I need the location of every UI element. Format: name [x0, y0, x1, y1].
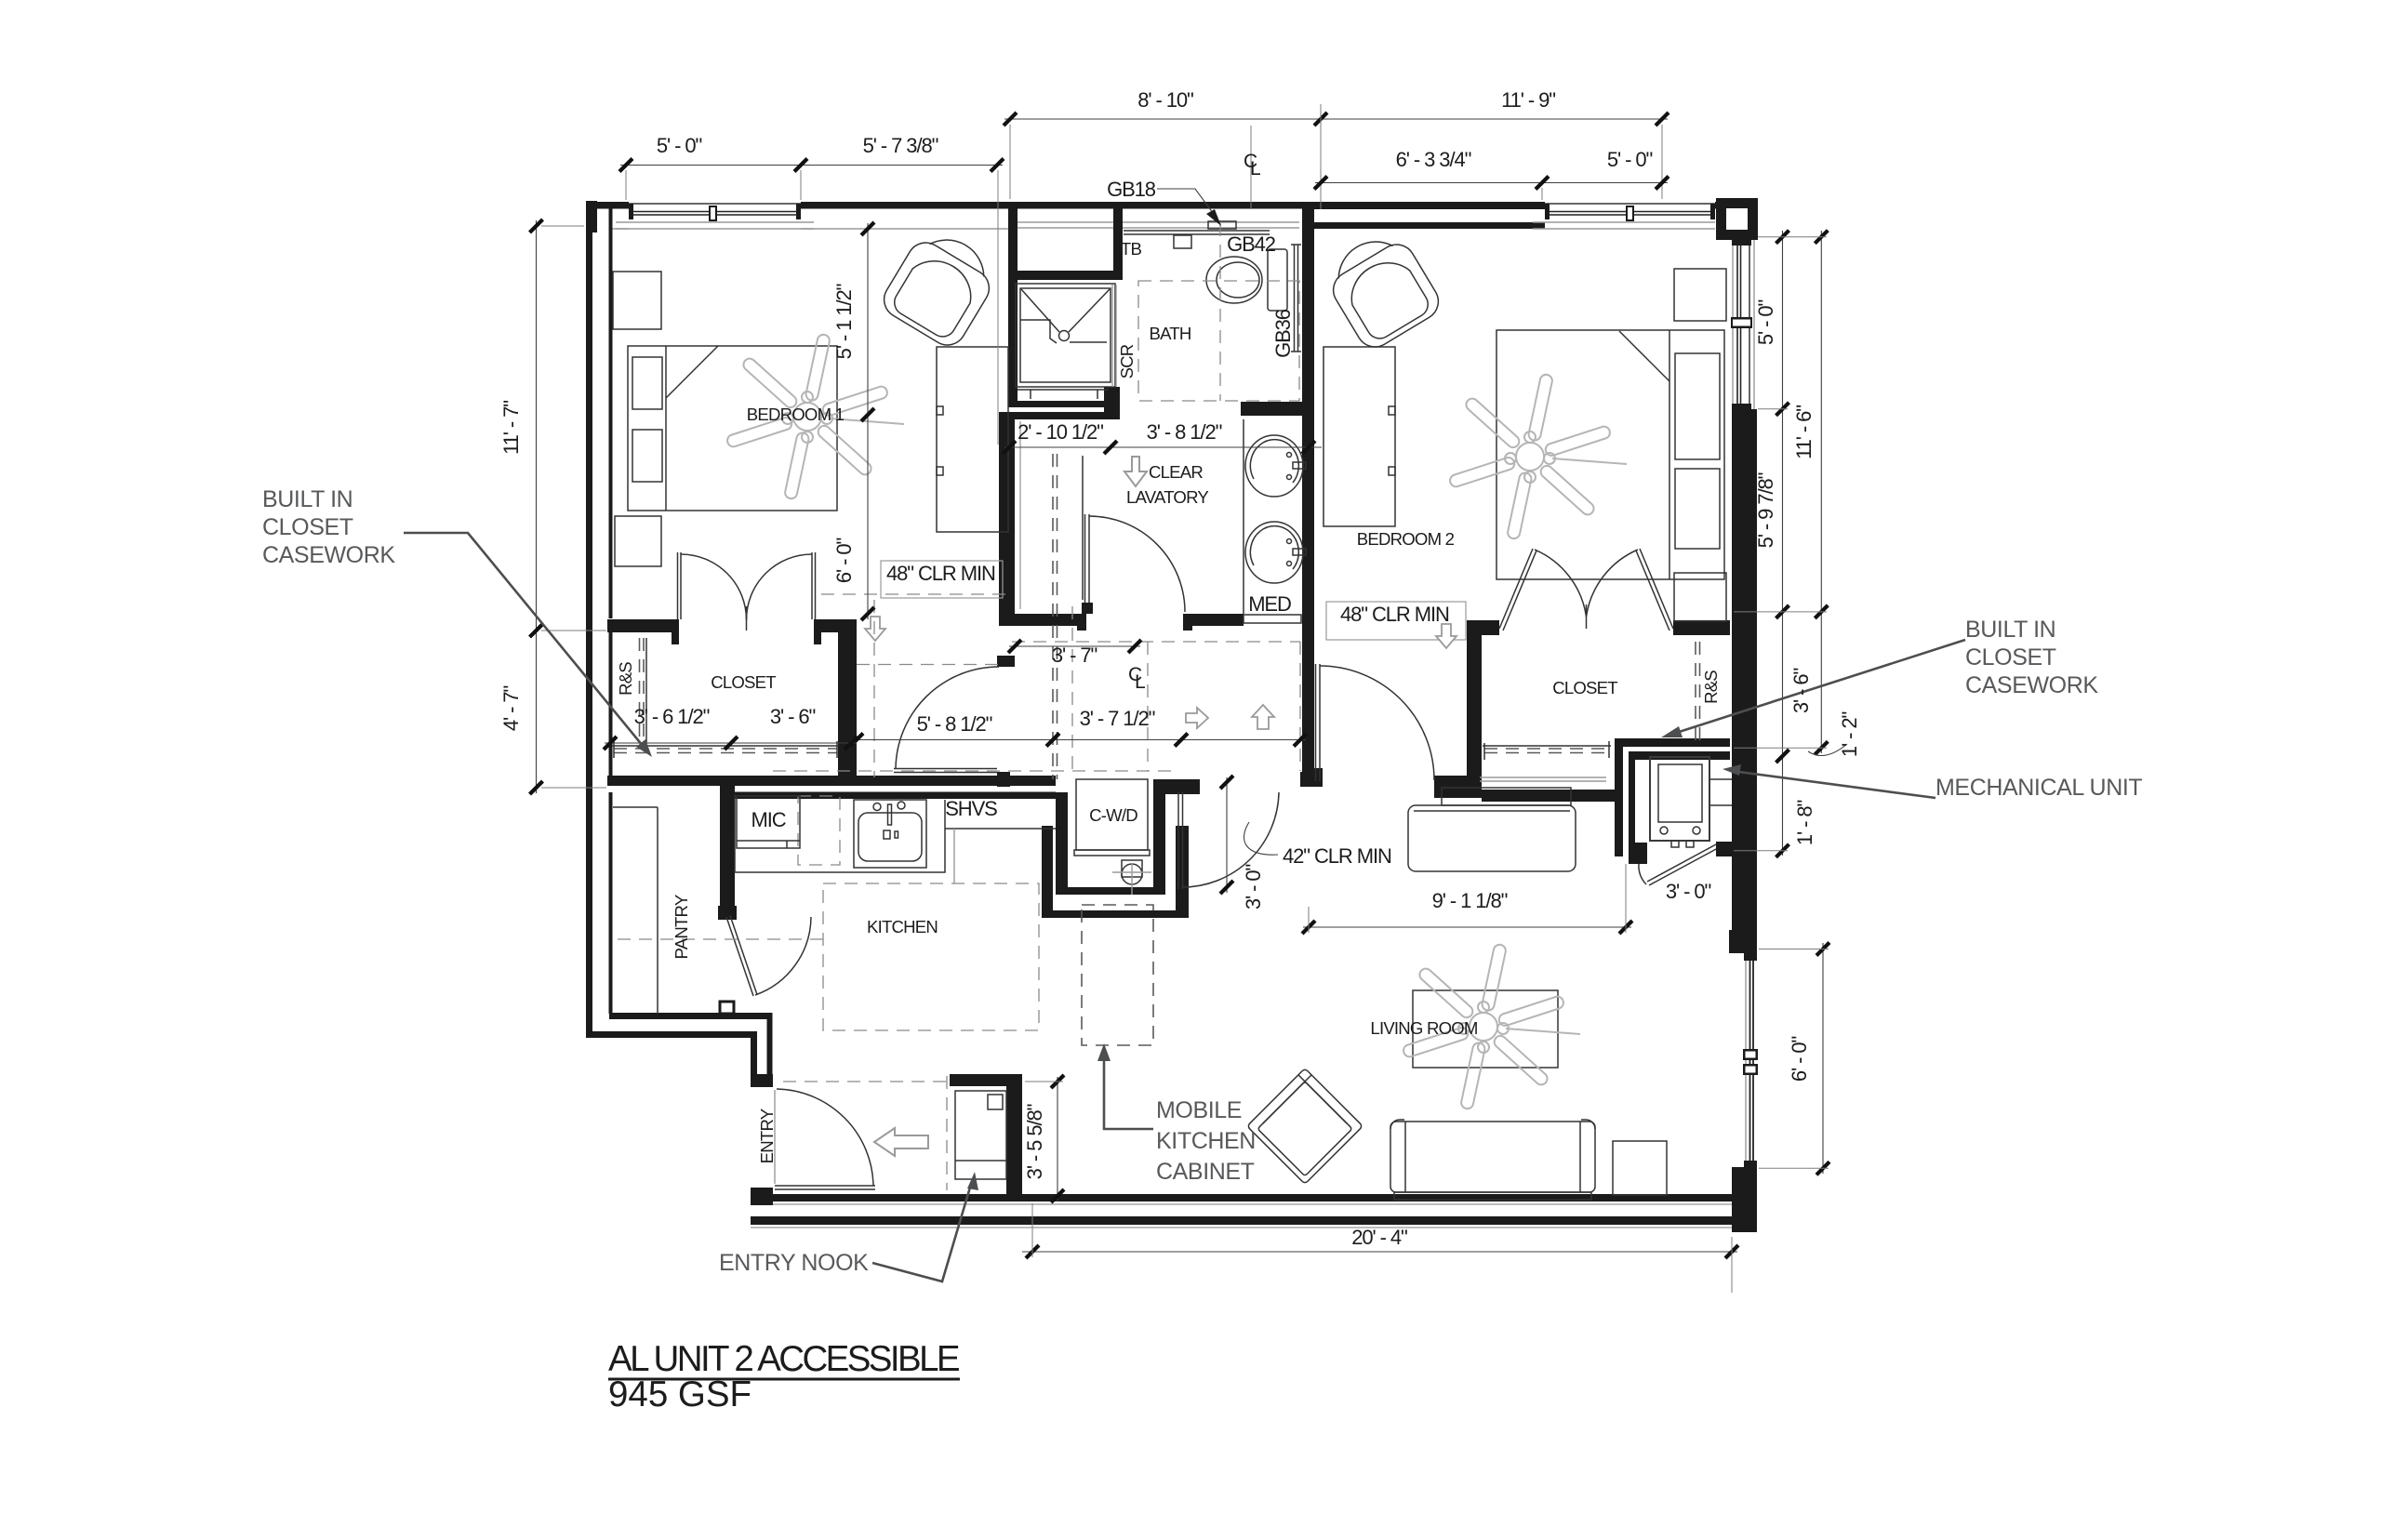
- svg-text:3' - 6": 3' - 6": [770, 705, 816, 728]
- svg-text:KITCHEN: KITCHEN: [1156, 1128, 1256, 1154]
- svg-text:KITCHEN: KITCHEN: [867, 917, 938, 936]
- svg-text:3' - 7 1/2": 3' - 7 1/2": [1080, 707, 1155, 730]
- svg-text:CLOSET: CLOSET: [262, 514, 353, 540]
- svg-text:3' - 5 5/8": 3' - 5 5/8": [1023, 1104, 1046, 1179]
- svg-text:11' - 7": 11' - 7": [499, 401, 523, 455]
- svg-text:11' - 9": 11' - 9": [1501, 88, 1555, 112]
- svg-text:CLOSET: CLOSET: [1552, 678, 1617, 697]
- svg-text:BUILT IN: BUILT IN: [1965, 617, 2055, 643]
- svg-text:8' - 10": 8' - 10": [1137, 88, 1193, 112]
- svg-text:1' - 2": 1' - 2": [1838, 712, 1861, 758]
- svg-text:SHVS: SHVS: [945, 797, 997, 820]
- svg-text:BUILT IN: BUILT IN: [262, 486, 352, 512]
- svg-text:2' - 10 1/2": 2' - 10 1/2": [1018, 420, 1103, 444]
- svg-text:5' - 8 1/2": 5' - 8 1/2": [917, 712, 992, 736]
- svg-text:3' - 7": 3' - 7": [1052, 644, 1097, 667]
- svg-text:MIC: MIC: [751, 808, 786, 831]
- svg-text:3' - 0": 3' - 0": [1242, 865, 1265, 910]
- svg-text:3' - 0": 3' - 0": [1666, 880, 1711, 903]
- svg-text:CLOSET: CLOSET: [711, 672, 776, 692]
- svg-text:5' - 9 7/8": 5' - 9 7/8": [1754, 472, 1777, 548]
- svg-text:4' - 7": 4' - 7": [499, 686, 523, 732]
- svg-text:CABINET: CABINET: [1156, 1159, 1255, 1185]
- svg-text:GB18: GB18: [1107, 178, 1156, 201]
- svg-text:R&S: R&S: [1701, 670, 1721, 704]
- svg-text:BEDROOM 1: BEDROOM 1: [747, 405, 845, 424]
- svg-text:BEDROOM 2: BEDROOM 2: [1357, 529, 1455, 549]
- svg-text:ENTRY NOOK: ENTRY NOOK: [719, 1250, 869, 1276]
- svg-text:6' - 0": 6' - 0": [1788, 1037, 1811, 1082]
- svg-text:945 GSF: 945 GSF: [608, 1374, 752, 1414]
- svg-text:L: L: [1250, 158, 1260, 179]
- svg-text:BATH: BATH: [1149, 324, 1190, 343]
- svg-text:3' - 6 1/2": 3' - 6 1/2": [634, 705, 710, 728]
- svg-text:TB: TB: [1121, 239, 1142, 259]
- svg-text:6' - 3 3/4": 6' - 3 3/4": [1396, 148, 1471, 171]
- svg-text:MOBILE: MOBILE: [1156, 1097, 1242, 1123]
- svg-text:GB42: GB42: [1227, 232, 1276, 256]
- svg-text:48" CLR MIN: 48" CLR MIN: [1340, 603, 1449, 626]
- svg-text:5' - 1 1/2": 5' - 1 1/2": [832, 284, 856, 359]
- svg-text:C-W/D: C-W/D: [1089, 805, 1137, 825]
- svg-text:GB36: GB36: [1271, 309, 1295, 358]
- svg-text:MED: MED: [1248, 592, 1291, 616]
- svg-text:11' - 6": 11' - 6": [1792, 405, 1816, 459]
- svg-text:AL UNIT 2 ACCESSIBLE: AL UNIT 2 ACCESSIBLE: [608, 1339, 960, 1379]
- svg-text:CASEWORK: CASEWORK: [1965, 672, 2098, 698]
- svg-text:L: L: [1135, 671, 1145, 693]
- svg-text:6' - 0": 6' - 0": [832, 538, 856, 584]
- svg-text:42" CLR MIN: 42" CLR MIN: [1283, 844, 1391, 868]
- svg-text:20' - 4": 20' - 4": [1351, 1226, 1407, 1249]
- svg-text:PANTRY: PANTRY: [672, 895, 691, 959]
- svg-text:5' - 0": 5' - 0": [1607, 148, 1653, 171]
- svg-text:MECHANICAL UNIT: MECHANICAL UNIT: [1935, 775, 2142, 801]
- svg-text:3' - 8 1/2": 3' - 8 1/2": [1147, 420, 1222, 444]
- svg-text:3' - 6": 3' - 6": [1789, 669, 1813, 714]
- svg-text:1' - 8": 1' - 8": [1793, 801, 1816, 846]
- svg-text:48" CLR MIN: 48" CLR MIN: [886, 562, 995, 585]
- svg-text:ENTRY: ENTRY: [757, 1109, 777, 1163]
- svg-text:5' - 0": 5' - 0": [657, 134, 702, 157]
- svg-text:5' - 7 3/8": 5' - 7 3/8": [863, 134, 938, 157]
- svg-text:LAVATORY: LAVATORY: [1126, 487, 1208, 507]
- svg-text:CLOSET: CLOSET: [1965, 644, 2056, 670]
- svg-text:CASEWORK: CASEWORK: [262, 542, 395, 568]
- svg-text:SCR: SCR: [1117, 344, 1137, 378]
- svg-text:CLEAR: CLEAR: [1149, 462, 1203, 482]
- svg-text:9' - 1 1/8": 9' - 1 1/8": [1432, 889, 1508, 912]
- svg-text:LIVING ROOM: LIVING ROOM: [1370, 1018, 1477, 1038]
- svg-text:R&S: R&S: [616, 662, 635, 696]
- svg-text:5' - 0": 5' - 0": [1754, 300, 1777, 346]
